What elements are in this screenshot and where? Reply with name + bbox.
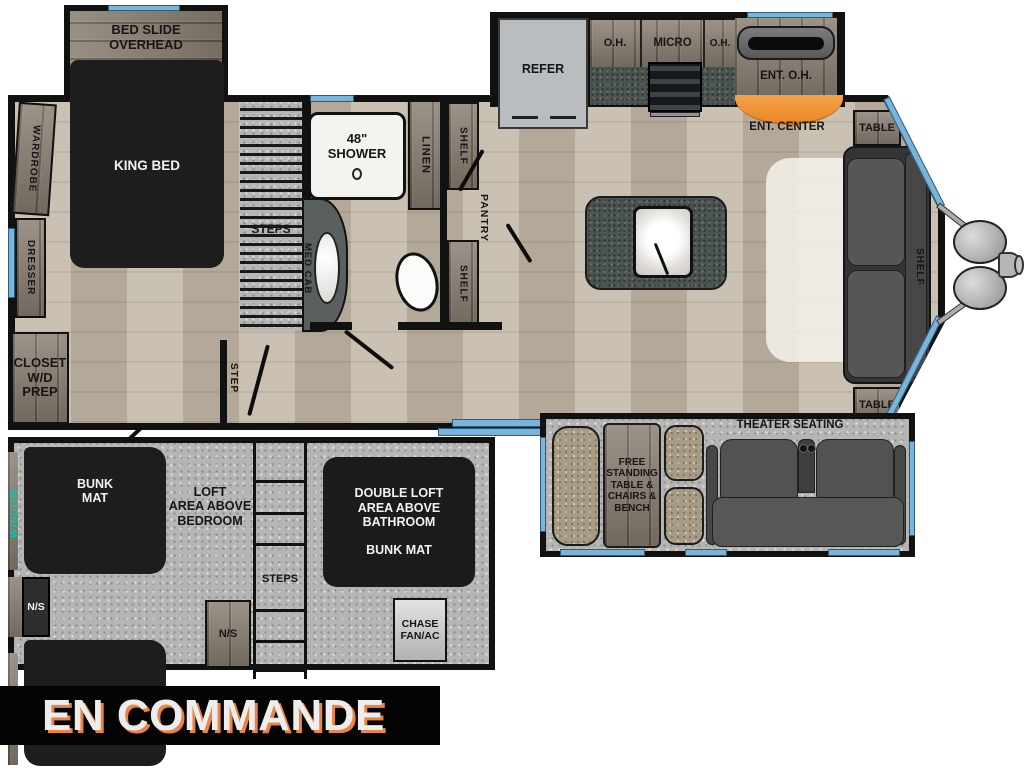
ladder-rung — [256, 640, 304, 643]
rear-slide-window-bottom-right — [828, 549, 900, 556]
step-wall — [220, 340, 227, 430]
loft-steps-label: STEPS — [256, 573, 304, 586]
shelf-lower: SHELF — [447, 240, 479, 328]
bath-window — [310, 95, 354, 102]
bunk-mat-upper: BUNK MAT — [24, 447, 166, 574]
bedroom-steps-label: STEPS — [240, 223, 302, 237]
rear-slide-window-bottom-mid — [685, 549, 727, 556]
shower-size: 48" — [347, 132, 368, 147]
shower-drain-icon — [352, 168, 362, 180]
front-shelf-label: SHELF — [914, 235, 925, 299]
tv-screen — [748, 37, 824, 50]
med-cab-label: MED CAB — [302, 222, 313, 316]
overhead-cabinets: O.H. MICRO O.H. — [590, 20, 735, 67]
rear-slide-window-bottom-left — [560, 549, 645, 556]
pantry-bottom-wall — [440, 322, 502, 330]
loft-section: ESCAPE WINDOW BUNK MAT WINDOW LOFT AREA … — [8, 437, 495, 670]
shelf-upper: SHELF — [447, 102, 479, 190]
dinette-chair-bottom — [664, 487, 704, 545]
loft-steps-ladder: STEPS — [253, 443, 307, 679]
refrigerator: REFER — [498, 18, 588, 129]
shower: 48" SHOWER — [308, 112, 406, 200]
ladder-rung — [256, 609, 304, 612]
refer-handle-left — [512, 116, 538, 119]
ladder-rung — [256, 543, 304, 546]
stove-drawer — [650, 112, 700, 117]
dresser-cabinet: DRESSER — [15, 218, 46, 318]
linen-cabinet: LINEN — [408, 100, 443, 210]
hitch-jack-wheel — [1014, 255, 1024, 275]
wardrobe-cabinet: WARDROBE — [11, 102, 57, 216]
step-label: STEP — [228, 352, 239, 404]
shelf-upper-label: SHELF — [449, 104, 477, 188]
dinette-table: FREE STANDING TABLE & CHAIRS & BENCH — [603, 423, 661, 548]
theater-cupholder-right — [807, 444, 816, 453]
dinette-chair-top — [664, 425, 704, 481]
floorplan-canvas: WARDROBE DRESSER CLOSET W/D PREP STEPS S… — [0, 0, 1024, 768]
status-banner: EN COMMANDE — [0, 686, 440, 745]
rear-slide: FREE STANDING TABLE & CHAIRS & BENCH THE… — [540, 413, 915, 557]
theater-seatback-left — [720, 439, 798, 499]
bedroom-window — [8, 228, 15, 298]
wardrobe-label: WARDROBE — [13, 104, 54, 214]
theater-seat-base — [712, 497, 904, 547]
status-banner-text: EN COMMANDE — [0, 691, 385, 741]
dinette-bench — [552, 426, 600, 546]
closet-wd-prep: CLOSET W/D PREP — [11, 332, 69, 424]
shelf-lower-label: SHELF — [449, 242, 477, 326]
micro-cabinet: MICRO — [642, 20, 705, 67]
rear-slide-window-left — [540, 437, 546, 532]
ent-oh-label: ENT. O.H. — [735, 70, 837, 83]
closet-label: CLOSET — [14, 356, 67, 371]
ns-left-frame — [8, 577, 22, 637]
ladder-rung — [256, 512, 304, 515]
pantry-label: PANTRY — [478, 172, 490, 264]
ladder-rung — [256, 480, 304, 483]
tv-icon — [737, 26, 835, 60]
loft-window-upper-label: WINDOW — [9, 463, 20, 563]
linen-label: LINEN — [410, 102, 441, 208]
med-cab-sink — [314, 232, 340, 304]
double-loft-bunk: DOUBLE LOFT AREA ABOVE BATHROOM BUNK MAT — [323, 457, 475, 587]
loft-area-label: LOFT AREA ABOVE BEDROOM — [160, 485, 260, 528]
bed-slide-label: BED SLIDE OVERHEAD — [70, 23, 222, 53]
stove-icon — [648, 62, 702, 112]
refer-handle-right — [550, 116, 576, 119]
refer-label: REFER — [500, 62, 586, 76]
king-bed-label: KING BED — [70, 158, 224, 174]
nightstand-right: N/S — [205, 600, 251, 668]
ladder-rung — [256, 669, 304, 672]
kitchen-slide: REFER O.H. MICRO O.H. ENT. O.H. — [490, 12, 845, 107]
double-loft-bunk-mat-label: BUNK MAT — [366, 543, 432, 557]
theater-label: THEATER SEATING — [705, 419, 875, 432]
entry-steps-lower — [438, 428, 552, 436]
bath-right-wall — [440, 100, 447, 330]
bed-slide-window — [108, 5, 180, 11]
sofa-cushion-top — [847, 158, 905, 266]
theater-seatback-right — [816, 439, 894, 499]
sofa-cushion-bottom — [847, 270, 905, 378]
bedroom-steps — [240, 102, 302, 330]
oh-cabinet-left: O.H. — [590, 20, 642, 67]
shower-label: SHOWER — [328, 147, 387, 162]
rear-slide-window-right — [909, 441, 915, 536]
king-bed: KING BED — [70, 60, 224, 268]
kitchen-slide-window — [747, 12, 833, 18]
oh-cabinet-right: O.H. — [705, 20, 735, 67]
table-rear-label: TABLE — [859, 122, 895, 135]
nightstand-left: N/S — [22, 577, 50, 637]
ent-center-label: ENT. CENTER — [733, 121, 841, 134]
chase-fan-ac: CHASE FAN/AC — [393, 598, 447, 662]
dresser-label: DRESSER — [17, 220, 44, 316]
